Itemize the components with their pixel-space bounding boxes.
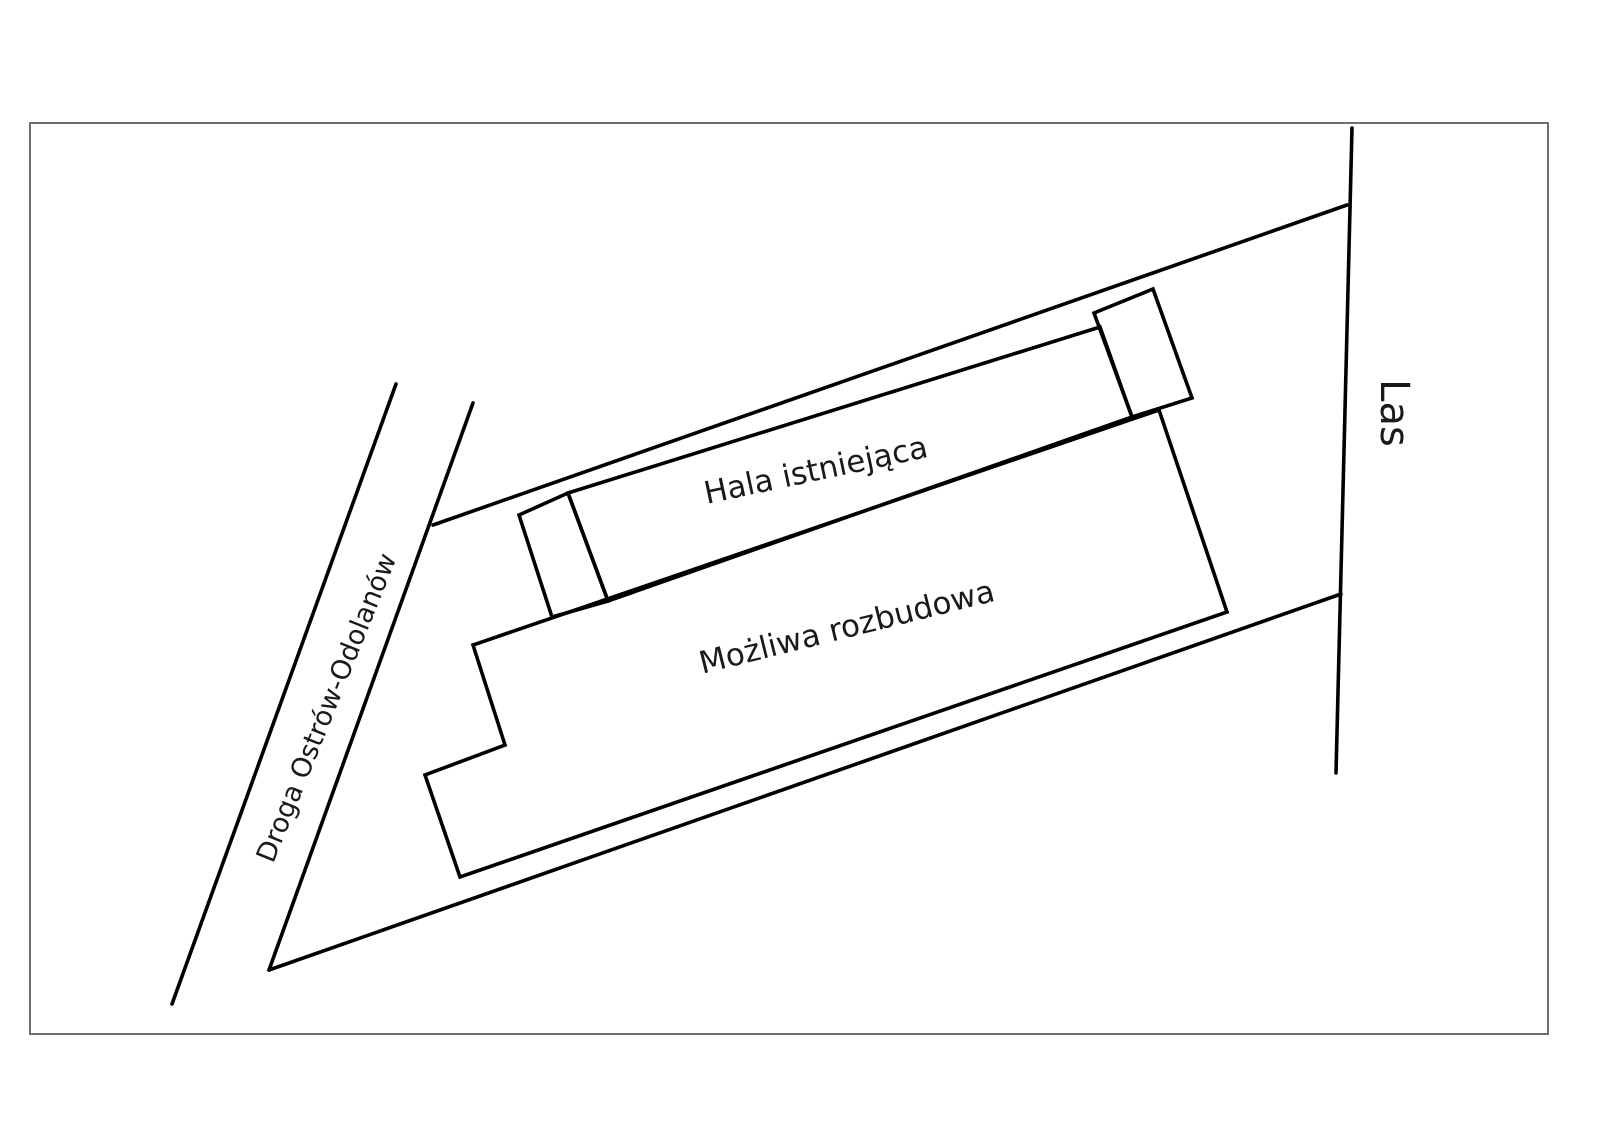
hall-right-annex-outline [1094,289,1192,417]
road-left-edge-line [172,384,396,1004]
road-right-edge-line [269,403,473,970]
forest-boundary-line [1336,128,1352,773]
map-frame [30,123,1548,1034]
forest-label: Las [1374,379,1414,447]
parcel-boundary-top-line [433,205,1347,525]
hall-left-annex-outline [519,493,608,617]
site-plan-canvas [0,0,1600,1130]
